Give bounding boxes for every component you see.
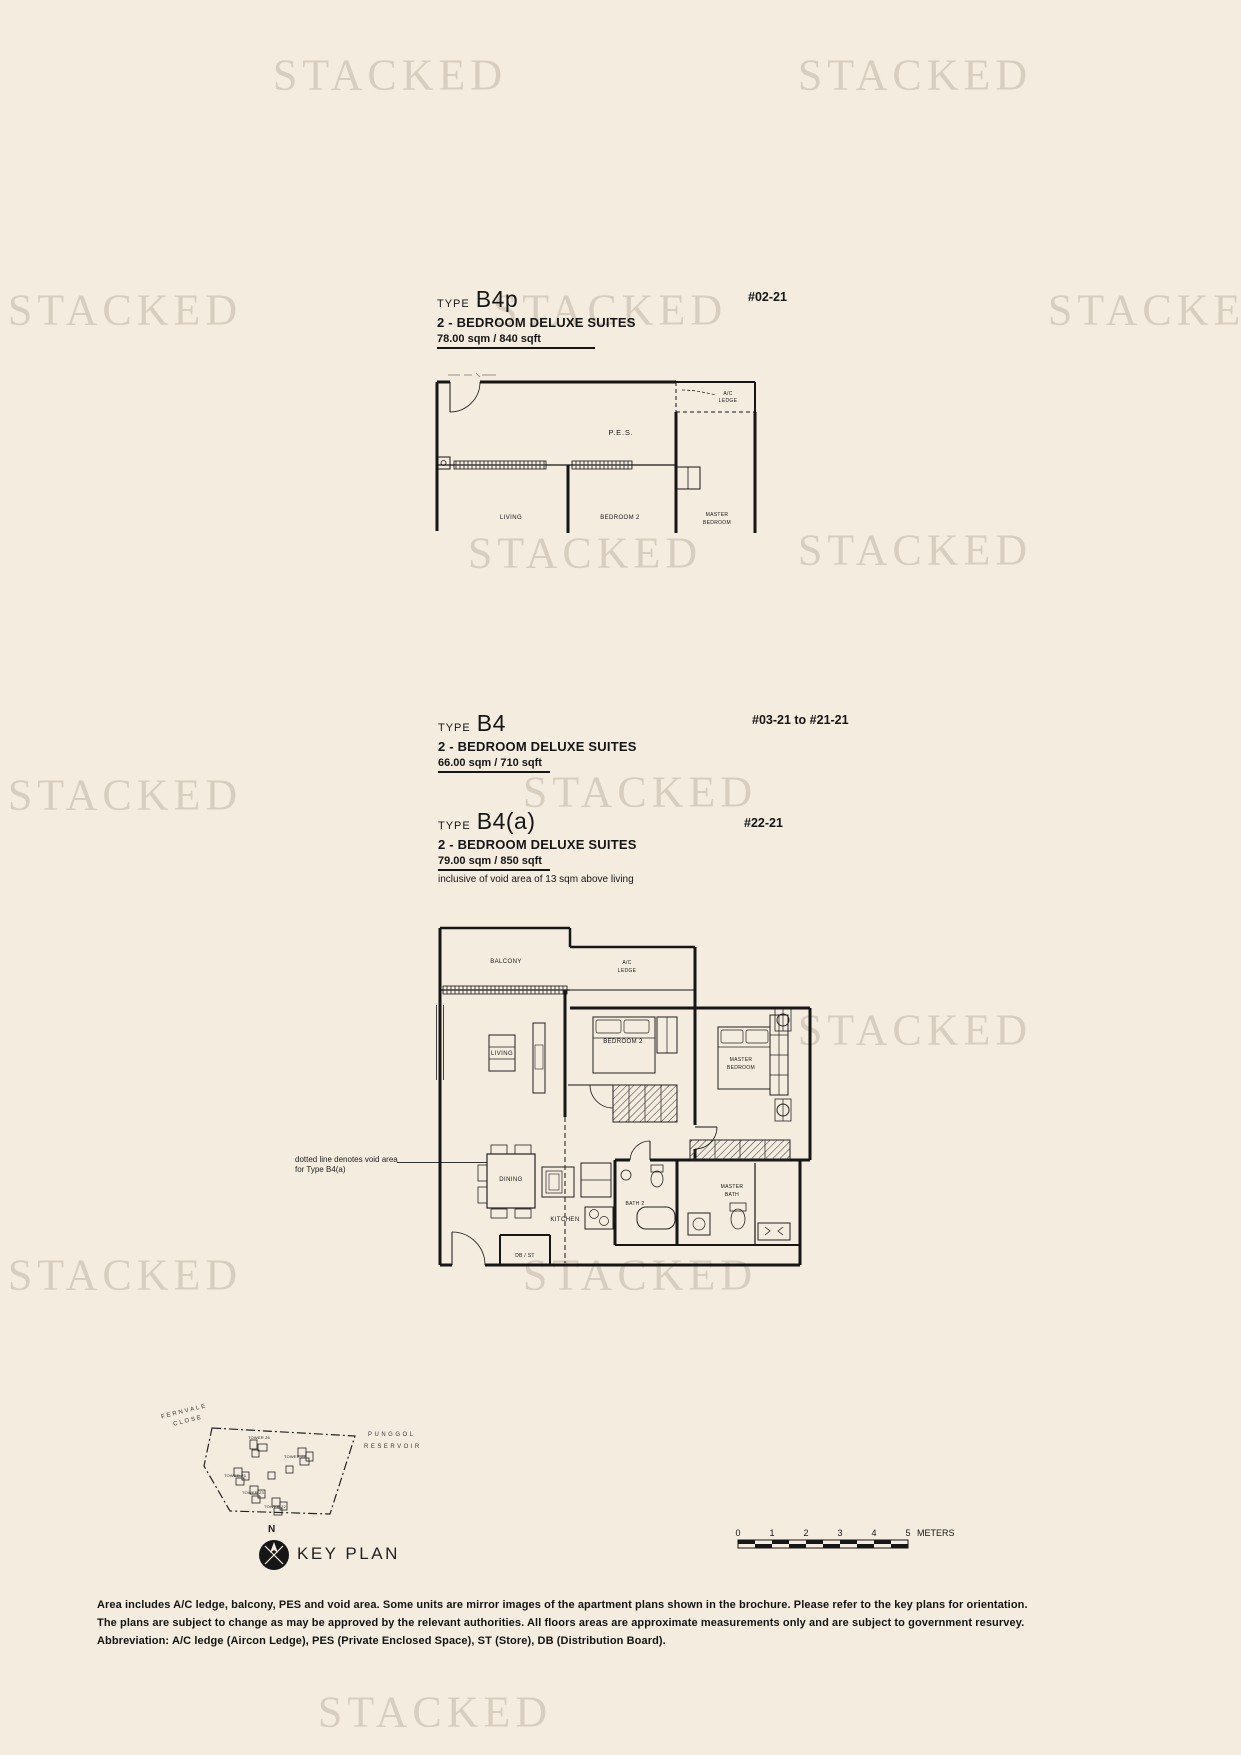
unit-number-b4p: #02-21 (748, 290, 787, 304)
watermark: STACKED (798, 1005, 1032, 1056)
watermark: STACKED (318, 1687, 552, 1738)
room-label-dining: DINING (499, 1177, 522, 1183)
watermark: STACKED (1048, 285, 1241, 336)
dining-chair (515, 1209, 531, 1218)
room-label-ac-ledge: A/C (723, 391, 732, 397)
cooker-hob (585, 1207, 613, 1229)
room-label-master-bath: MASTER (721, 1184, 744, 1190)
room-label-db-st: DB / ST (515, 1253, 535, 1259)
dining-chair (515, 1145, 531, 1154)
unit-area: 79.00 sqm / 850 sqft (438, 855, 550, 871)
scale-bar-segments (738, 1540, 908, 1548)
compass-icon (257, 1538, 291, 1572)
room-label-master-bath: BATH (725, 1192, 739, 1198)
unit-number-b4: #03-21 to #21-21 (752, 713, 849, 727)
tower-label: TOWER 27 (284, 1454, 307, 1459)
type-name: B4p (476, 286, 518, 313)
basin (621, 1170, 631, 1180)
tower-label: TOWER 26 (248, 1435, 271, 1440)
type-label: TYPE (437, 298, 470, 310)
room-label-master-bedroom: MASTER (730, 1057, 753, 1063)
dining-chair (491, 1145, 507, 1154)
floor-plan-b4p: P.E.S. A/C LEDGE LIVING BEDROOM 2 MASTER… (430, 368, 760, 533)
walls (437, 382, 755, 533)
room-label-bath2: BATH 2 (626, 1201, 645, 1207)
toilet (730, 1203, 746, 1211)
dining-chair (491, 1209, 507, 1218)
unit-type-header-b4a: TYPE B4(a) 2 - BEDROOM DELUXE SUITES 79.… (438, 808, 637, 885)
watermark: STACKED (8, 285, 242, 336)
type-title: TYPE B4(a) (438, 808, 637, 835)
watermark: STACKED (798, 50, 1032, 101)
unit-area-note: inclusive of void area of 13 sqm above l… (438, 874, 637, 885)
scale-tick: 2 (803, 1528, 808, 1538)
aircon-symbol (775, 1009, 791, 1121)
kitchen-counter (542, 1167, 574, 1197)
room-label-living: LIVING (491, 1051, 513, 1057)
room-label-ac-ledge: LEDGE (719, 398, 738, 404)
tower-label: TOWER 23 (242, 1490, 265, 1495)
unit-type-header-b4p: TYPE B4p 2 - BEDROOM DELUXE SUITES 78.00… (437, 286, 636, 349)
scale-tick: 4 (871, 1528, 876, 1538)
site-boundary (204, 1428, 355, 1514)
type-label: TYPE (438, 820, 471, 832)
ac-ledge-vent (758, 1223, 790, 1240)
scale-tick: 5 (905, 1528, 910, 1538)
room-label-master-bedroom: BEDROOM (727, 1065, 755, 1071)
water-label-punggol: PUNGGOL (368, 1432, 416, 1438)
disclaimer-line-1: Area includes A/C ledge, balcony, PES an… (97, 1599, 1182, 1611)
room-label-bedroom2: BEDROOM 2 (603, 1039, 643, 1045)
room-label-pes: P.E.S. (608, 428, 633, 437)
type-label: TYPE (438, 722, 471, 734)
scale-tick: 3 (837, 1528, 842, 1538)
scale-tick: 1 (769, 1528, 774, 1538)
type-title: TYPE B4 (438, 710, 637, 737)
unit-area: 78.00 sqm / 840 sqft (437, 333, 595, 349)
scale-unit-label: METERS (917, 1528, 955, 1538)
watermark: STACKED (798, 525, 1032, 576)
basin (688, 1213, 710, 1235)
disclaimer-line-3: Abbreviation: A/C ledge (Aircon Ledge), … (97, 1635, 1182, 1647)
unit-description: 2 - BEDROOM DELUXE SUITES (437, 315, 636, 330)
key-plan-map: FERNVALE CLOSE PUNGGOL RESERVOIR TOWER 2… (150, 1398, 450, 1526)
watermark: STACKED (8, 1250, 242, 1301)
floor-plan-b4: BALCONY A/C LEDGE LIVING BEDROOM 2 MASTE… (425, 905, 820, 1270)
unit-area: 66.00 sqm / 710 sqft (438, 757, 550, 773)
room-label-bedroom2: BEDROOM 2 (600, 515, 640, 521)
scale-tick: 0 (735, 1528, 740, 1538)
room-label-living: LIVING (500, 515, 522, 521)
key-plan-title: KEY PLAN (297, 1544, 400, 1564)
unit-description: 2 - BEDROOM DELUXE SUITES (438, 837, 637, 852)
watermark: STACKED (273, 50, 507, 101)
type-name: B4(a) (477, 808, 536, 835)
disclaimer-line-2: The plans are subject to change as may b… (97, 1617, 1182, 1629)
unit-number-b4a: #22-21 (744, 816, 783, 830)
room-label-master-bedroom: BEDROOM (703, 520, 731, 526)
unit-description: 2 - BEDROOM DELUXE SUITES (438, 739, 637, 754)
void-note-line1: dotted line denotes void area (295, 1155, 398, 1165)
void-note-line2: for Type B4(a) (295, 1165, 398, 1175)
scale-bar: 0 1 2 3 4 5 METERS (733, 1526, 968, 1554)
watermark: STACKED (8, 770, 242, 821)
room-label-ac-ledge: LEDGE (618, 968, 637, 974)
room-label-balcony: BALCONY (490, 959, 521, 965)
unit-type-header-b4: TYPE B4 2 - BEDROOM DELUXE SUITES 66.00 … (438, 710, 637, 773)
tower-label: TOWER 25 (224, 1473, 247, 1478)
type-name: B4 (477, 710, 506, 737)
water-label-reservoir: RESERVOIR (364, 1444, 422, 1450)
dining-chair (478, 1165, 487, 1181)
room-label-ac-ledge: A/C (622, 960, 631, 966)
bathtub (637, 1207, 675, 1229)
room-label-kitchen: KITCHEN (550, 1217, 579, 1223)
dining-chair (478, 1187, 487, 1203)
north-label: N (268, 1524, 275, 1535)
kitchen-sink (546, 1171, 562, 1193)
road-label-fernvale-close: FERNVALE CLOSE (161, 1403, 211, 1430)
room-label-master-bedroom: MASTER (706, 512, 729, 518)
void-area-note: dotted line denotes void area for Type B… (295, 1155, 398, 1175)
tower-label: TOWER 22 (264, 1504, 287, 1509)
type-title: TYPE B4p (437, 286, 636, 313)
watermark: STACKED (468, 528, 702, 579)
illegible-annotation (448, 373, 496, 377)
floor-plan-brochure-page: STACKED STACKED STACKED STACKED STACKED … (0, 0, 1241, 1755)
